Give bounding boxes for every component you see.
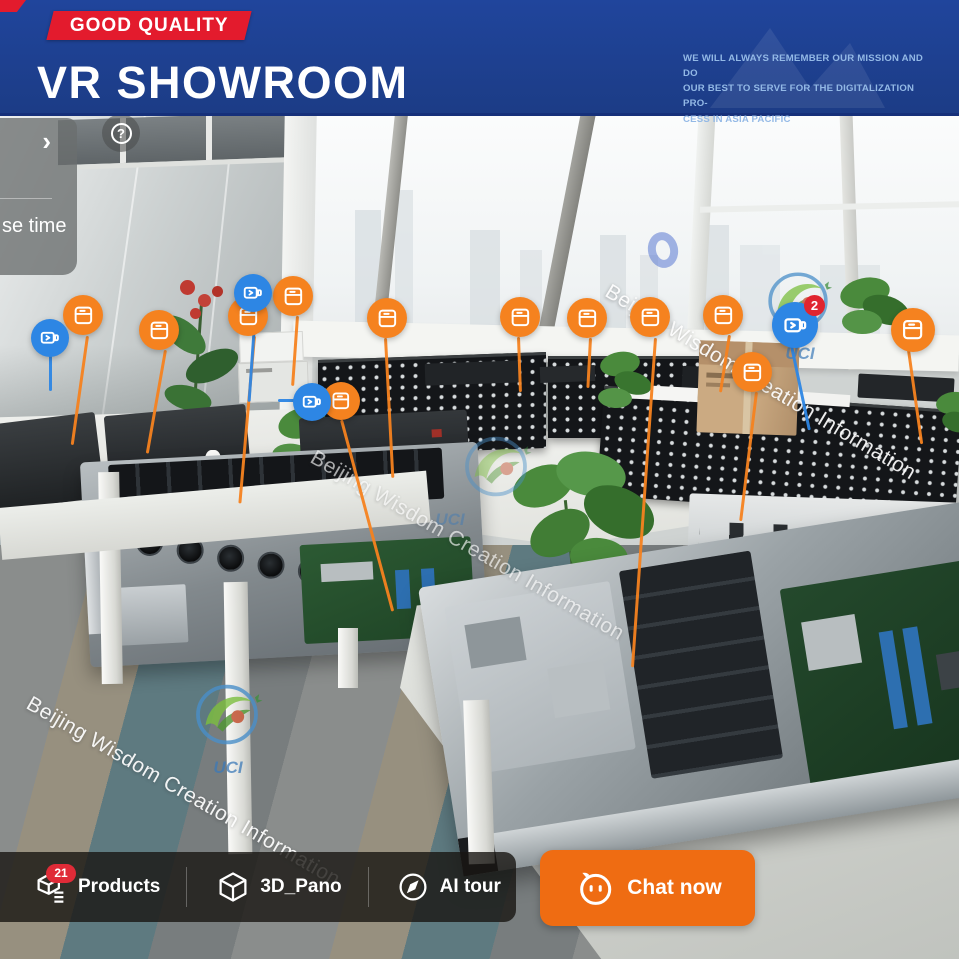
side-info-panel[interactable]: › se time <box>0 118 77 275</box>
mission-line: CESS IN ASIA PACIFIC <box>683 112 933 127</box>
panel-divider <box>0 198 52 199</box>
video-camera-icon <box>38 326 62 350</box>
product-box-icon <box>281 284 306 309</box>
panel-text: se time <box>2 215 66 238</box>
bottom-toolbar: Products 3D_Pano AI tour 21 <box>0 852 516 922</box>
product-hotspot[interactable] <box>500 297 540 337</box>
product-box-icon <box>375 306 400 331</box>
pano-label: 3D_Pano <box>260 876 341 898</box>
ribbon-label: GOOD QUALITY <box>70 15 229 37</box>
table-leg <box>338 628 358 688</box>
display-product <box>425 360 521 385</box>
product-hotspot[interactable] <box>630 297 670 337</box>
ai-tour-compass-icon <box>395 869 431 905</box>
ai-tour-label: AI tour <box>440 876 501 898</box>
toolbar-divider <box>368 867 369 907</box>
products-count-badge: 21 <box>46 864 76 883</box>
product-box-icon <box>899 316 926 343</box>
product-box-icon <box>71 303 96 328</box>
product-box-icon <box>329 389 353 413</box>
vr-showroom-app: UCI Beijing Wisdom Creation Information … <box>0 0 959 959</box>
product-box-icon <box>508 305 533 330</box>
pano-button[interactable]: 3D_Pano <box>215 869 341 905</box>
video-hotspot[interactable] <box>293 383 331 421</box>
chat-bubble-icon <box>573 866 617 910</box>
video-hotspot[interactable] <box>31 319 69 357</box>
ai-tour-button[interactable]: AI tour <box>395 869 501 905</box>
video-camera-icon <box>241 281 265 305</box>
header-banner: GOOD QUALITY VR SHOWROOM WE WILL ALWAYS … <box>0 0 959 116</box>
product-box-icon <box>575 306 600 331</box>
page-title: VR SHOWROOM <box>37 57 409 109</box>
chat-label: Chat now <box>627 876 722 900</box>
product-hotspot[interactable] <box>891 308 935 352</box>
corner-ribbon-fold <box>0 0 26 12</box>
product-box-icon <box>740 360 765 385</box>
product-hotspot[interactable] <box>139 310 179 350</box>
product-hotspot[interactable] <box>273 276 313 316</box>
product-hotspot[interactable] <box>703 295 743 335</box>
product-hotspot[interactable] <box>567 298 607 338</box>
question-mark-icon: ? <box>111 123 132 144</box>
toolbar-divider <box>186 867 187 907</box>
product-box-icon <box>638 305 663 330</box>
help-button[interactable]: ? <box>102 114 140 152</box>
mission-line: WE WILL ALWAYS REMEMBER OUR MISSION AND … <box>683 51 933 81</box>
product-hotspot[interactable] <box>367 298 407 338</box>
video-camera-icon <box>300 390 324 414</box>
quality-ribbon: GOOD QUALITY <box>46 11 251 40</box>
mission-line: OUR BEST TO SERVE FOR THE DIGITALIZATION… <box>683 81 933 111</box>
products-label: Products <box>78 876 160 898</box>
video-hotspot[interactable]: 2 <box>772 302 818 348</box>
video-hotspot[interactable] <box>234 274 272 312</box>
product-hotspot[interactable] <box>63 295 103 335</box>
svg-text:UCI: UCI <box>213 758 244 777</box>
video-camera-icon <box>781 311 810 340</box>
transom-window <box>58 112 302 171</box>
mission-statement: WE WILL ALWAYS REMEMBER OUR MISSION AND … <box>683 51 933 127</box>
video-count-badge: 2 <box>804 295 825 316</box>
product-hotspot[interactable] <box>732 352 772 392</box>
pano-cube-icon <box>215 869 251 905</box>
chevron-right-icon[interactable]: › <box>42 126 51 157</box>
chat-now-button[interactable]: Chat now <box>540 850 755 926</box>
product-box-icon <box>711 303 736 328</box>
product-box-icon <box>147 318 172 343</box>
